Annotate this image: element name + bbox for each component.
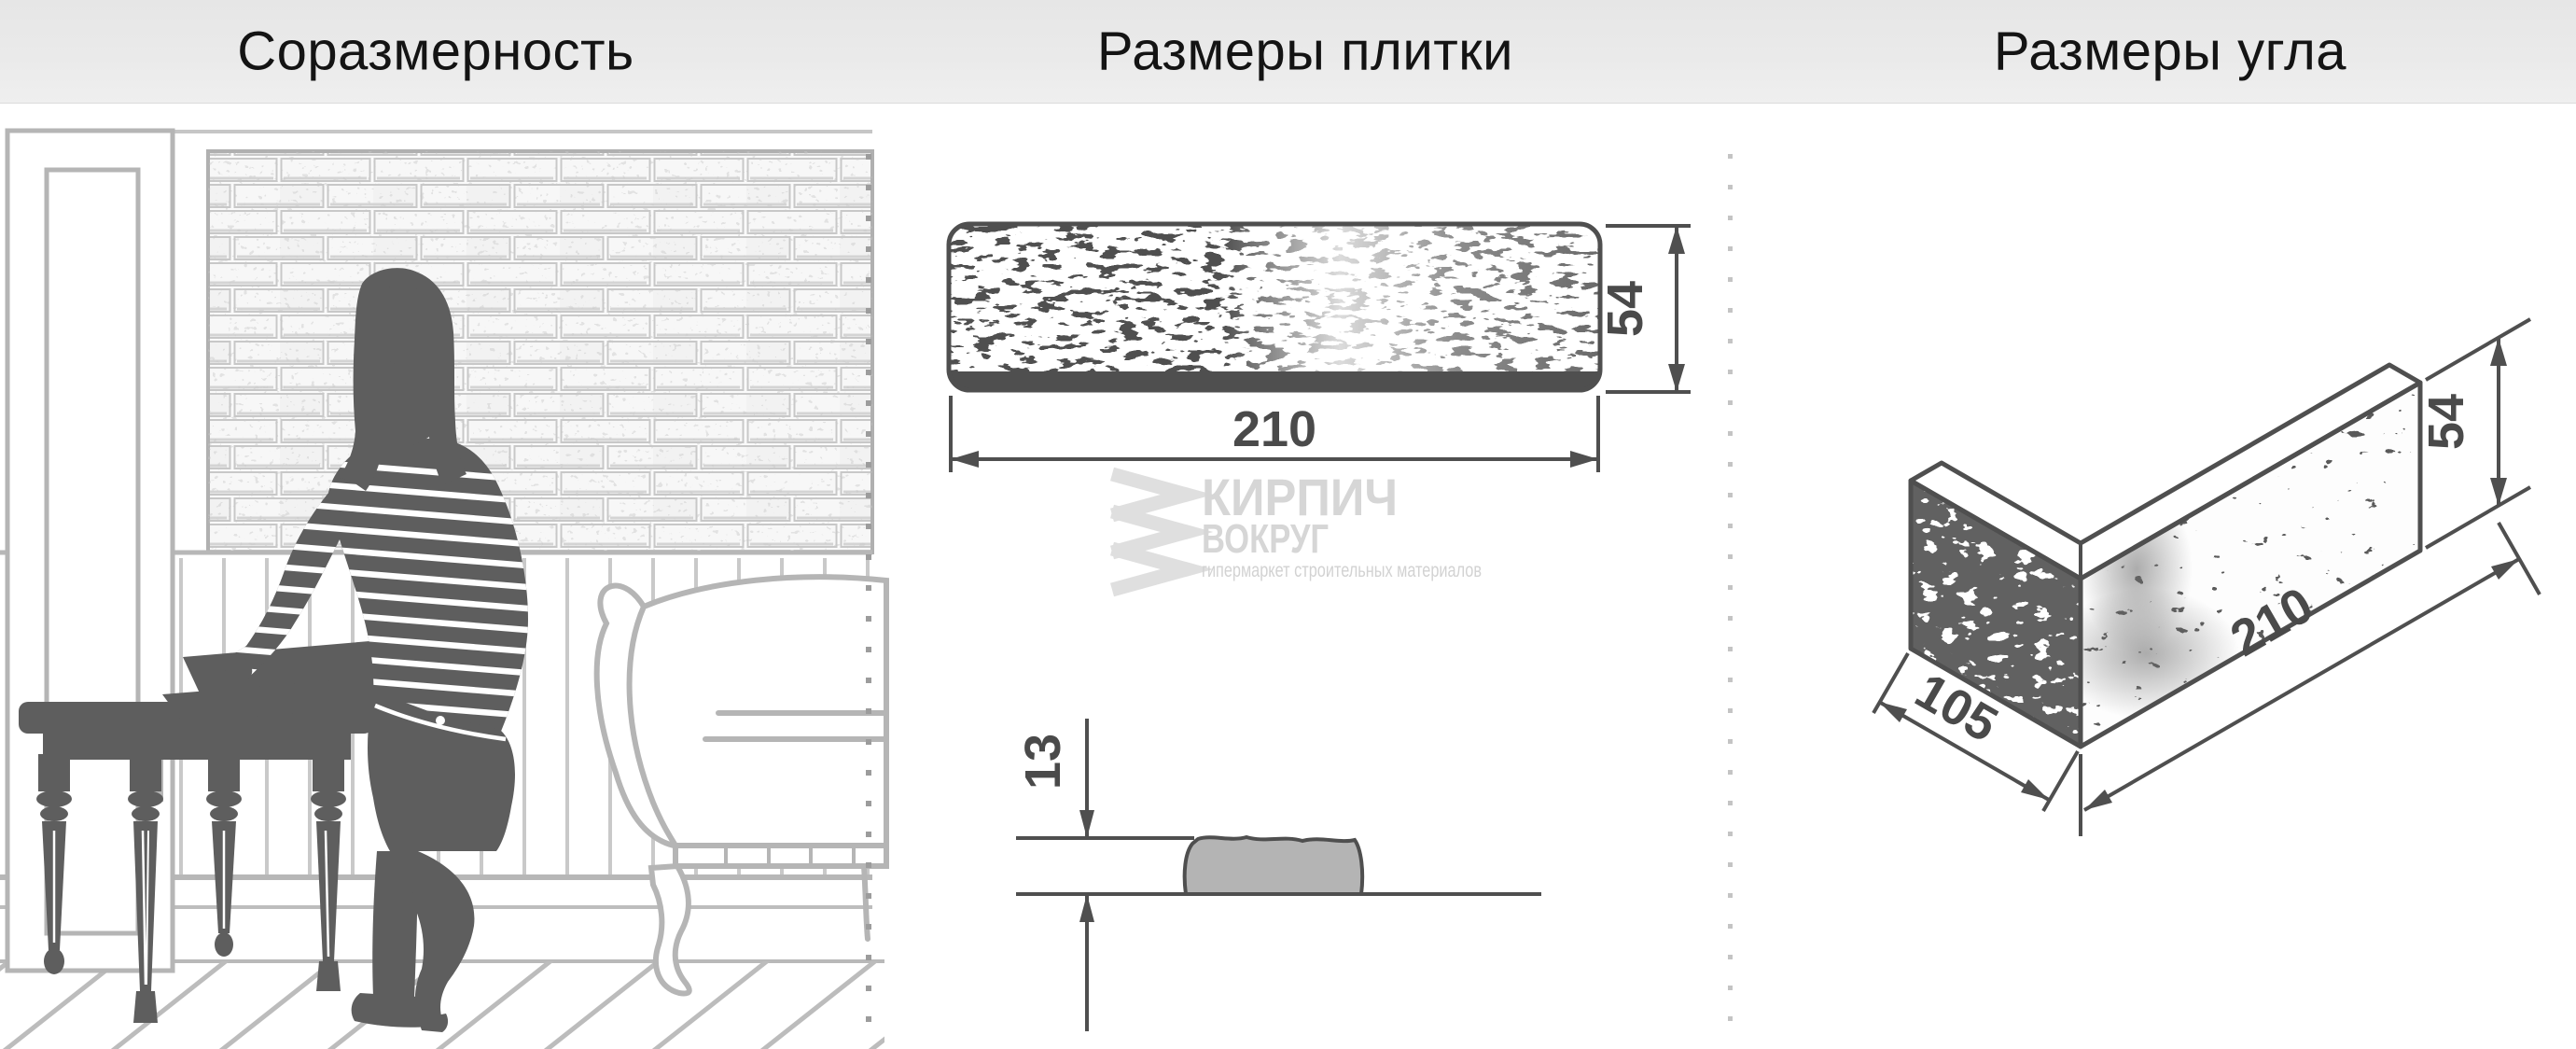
watermark-brand-bottom: ВОКРУГ [1202, 516, 1329, 562]
arrow-right-icon [2491, 559, 2519, 580]
brand-logo-icon [1112, 474, 1187, 590]
arrow-right-icon [1570, 451, 1598, 468]
tile-face-view [949, 224, 1600, 390]
arrow-left-icon [1879, 702, 1907, 722]
tile-dimension-diagram: КИРПИЧ ВОКРУГ гипермаркет строительных м… [949, 131, 1733, 1036]
sofa-front-leg [651, 866, 689, 994]
arrow-up-icon [1079, 894, 1094, 922]
arrow-down-icon [1079, 810, 1094, 838]
jeans-button [436, 716, 445, 725]
arrow-right-icon [2021, 779, 2049, 800]
sofa [597, 577, 886, 993]
front-leg [372, 851, 418, 999]
separator-dots-right [1728, 131, 1733, 1036]
tile-width-label: 210 [1232, 401, 1316, 457]
table-leg [311, 754, 346, 991]
watermark-tagline: гипермаркет строительных материалов [1202, 560, 1482, 581]
arrow-up-icon [1668, 226, 1685, 254]
tile-height-label: 54 [1597, 281, 1653, 337]
proportion-illustration [0, 131, 1086, 1049]
brand-watermark: КИРПИЧ ВОКРУГ гипермаркет строительных м… [1112, 468, 1482, 590]
tile-profile-shape [1185, 837, 1362, 894]
diagram-canvas: КИРПИЧ ВОКРУГ гипермаркет строительных м… [0, 0, 2576, 1049]
separator-dots-left [866, 140, 871, 1034]
table-leg [206, 754, 242, 957]
tile-cross-section: 13 [1015, 719, 1541, 1031]
corner-height-label: 54 [2418, 394, 2474, 450]
corner-dimension-diagram: 54 105 210 [1873, 319, 2540, 836]
tile-thickness-label: 13 [1015, 734, 1071, 790]
brick-wall-panel [208, 151, 872, 552]
tile-thickness-dimension [1079, 719, 1094, 1031]
arrow-left-icon [951, 451, 979, 468]
arrow-left-icon [2084, 790, 2112, 810]
arrow-down-icon [1668, 364, 1685, 392]
